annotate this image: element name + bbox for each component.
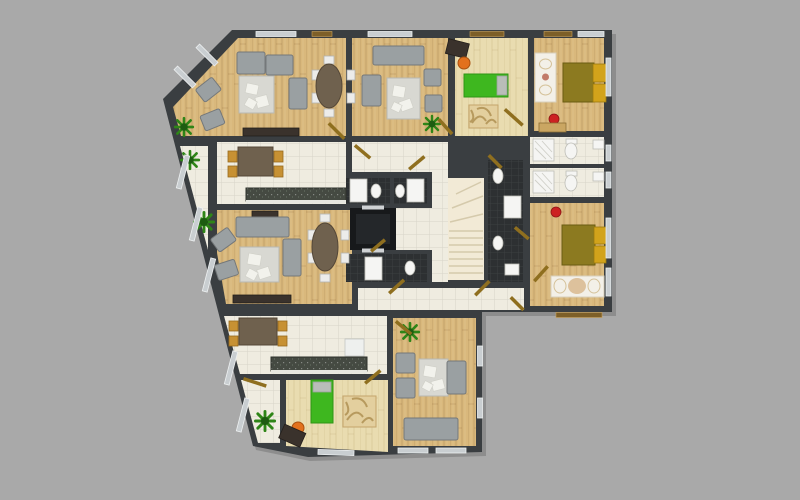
rug: [387, 78, 420, 119]
window: [478, 346, 483, 366]
kitchen-table: [238, 147, 273, 176]
sink: [505, 264, 519, 275]
window: [606, 145, 611, 161]
rug: [419, 359, 448, 396]
toilet: [493, 236, 503, 250]
potted-plant: [255, 411, 274, 430]
toilet: [565, 175, 577, 191]
chair: [274, 166, 283, 177]
sofa: [373, 46, 424, 65]
floor-plan-canvas: [0, 0, 800, 500]
sink: [593, 140, 604, 149]
rug: [239, 76, 274, 113]
red-ball: [551, 207, 561, 217]
red-ball: [549, 114, 559, 124]
floor-plan-image: [0, 0, 800, 500]
hallway-main-floor: [358, 288, 524, 310]
shower-tray: [504, 196, 521, 218]
armchair: [396, 378, 415, 398]
sofa: [404, 418, 458, 440]
toilet: [371, 184, 381, 198]
loveseat: [283, 239, 301, 276]
chair: [278, 321, 287, 331]
landing-floor: [396, 208, 432, 250]
counter-front: [246, 200, 346, 204]
tv-stand: [252, 211, 278, 217]
kids-bed: [311, 380, 333, 423]
rug: [469, 105, 498, 128]
sofa: [237, 52, 265, 74]
window: [436, 448, 466, 453]
sofa: [236, 217, 289, 237]
window: [478, 398, 483, 418]
potted-plant: [175, 118, 193, 136]
armchair: [425, 95, 442, 112]
kitchen-counter: [246, 188, 346, 201]
side-sofa: [362, 75, 381, 106]
kitchen-table: [239, 318, 277, 345]
chair: [228, 166, 237, 177]
shower-tray: [365, 257, 382, 280]
sideboard: [233, 295, 291, 303]
elevator-door: [362, 206, 384, 210]
window-lintel: [470, 32, 504, 37]
elevator-car: [356, 214, 390, 244]
kids-bed: [464, 74, 508, 97]
kitchen-counter: [271, 357, 367, 371]
potted-plant: [424, 116, 440, 132]
toilet: [565, 143, 577, 159]
toilet: [405, 261, 415, 275]
staircase-floor: [448, 178, 484, 280]
toilet: [493, 169, 503, 184]
desk-chair: [458, 57, 470, 69]
loveseat: [289, 78, 307, 109]
rug: [240, 247, 279, 282]
sink: [593, 172, 604, 181]
hallway-bottom-left-furniture: [255, 411, 274, 430]
fridge: [345, 339, 364, 356]
window: [606, 58, 611, 96]
armchair: [396, 353, 415, 373]
runner-rug: [535, 53, 556, 102]
window-lintel: [544, 32, 572, 37]
counter-front: [271, 370, 367, 374]
window-lintel: [312, 32, 332, 37]
chair: [229, 336, 238, 346]
window-lintel: [556, 313, 602, 318]
window: [606, 172, 611, 188]
sofa: [266, 55, 293, 75]
loveseat: [447, 361, 466, 394]
landing-strip-floor: [432, 172, 448, 282]
bathroom-divider-wall: [390, 178, 394, 204]
window: [318, 449, 354, 455]
window: [368, 32, 412, 37]
dresser: [539, 123, 566, 132]
runner-rug: [551, 276, 604, 297]
sideboard: [243, 128, 299, 136]
chair: [229, 321, 238, 331]
window: [398, 448, 428, 453]
shower-tray: [350, 179, 367, 202]
chair: [278, 336, 287, 346]
window: [578, 32, 604, 37]
toilet: [396, 185, 405, 198]
armchair: [424, 69, 441, 86]
window: [606, 268, 611, 296]
chair: [274, 151, 283, 162]
window: [256, 32, 296, 37]
chair: [228, 151, 237, 162]
rug: [343, 396, 376, 427]
window: [606, 218, 611, 258]
shower-tray: [407, 179, 424, 202]
